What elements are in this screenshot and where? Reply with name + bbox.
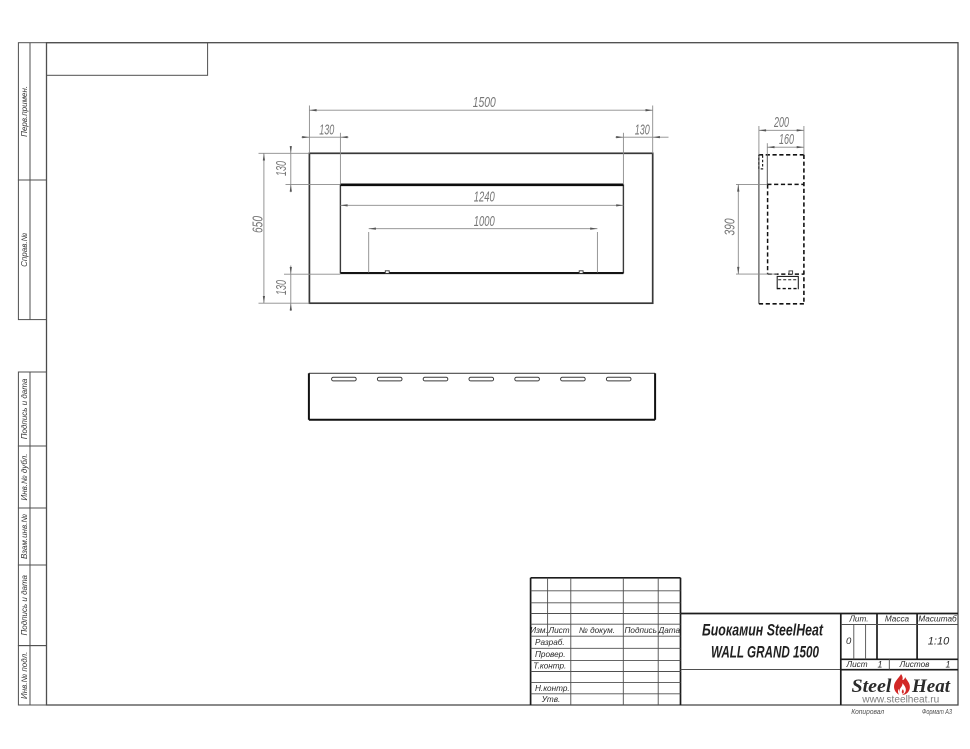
svg-text:www.steelheat.ru: www.steelheat.ru <box>861 695 939 706</box>
svg-text:Инв.№ дубл.: Инв.№ дубл. <box>20 454 29 501</box>
svg-text:Дата: Дата <box>657 626 680 635</box>
svg-text:Н.контр.: Н.контр. <box>535 684 570 693</box>
svg-text:130: 130 <box>273 161 290 176</box>
svg-text:Лист: Лист <box>845 660 867 669</box>
svg-text:130: 130 <box>319 122 334 139</box>
svg-text:Лист: Лист <box>547 626 569 635</box>
svg-text:Масштаб: Масштаб <box>918 615 957 624</box>
svg-text:130: 130 <box>273 280 290 295</box>
svg-text:390: 390 <box>722 218 739 235</box>
svg-text:Взам.инв.№: Взам.инв.№ <box>20 514 29 559</box>
svg-text:Инв.№ подл.: Инв.№ подл. <box>20 652 29 699</box>
svg-text:Копировал: Копировал <box>851 707 885 716</box>
svg-text:200: 200 <box>773 114 789 131</box>
svg-text:№ докум.: № докум. <box>579 626 615 635</box>
svg-text:Изм.: Изм. <box>530 626 547 635</box>
svg-text:160: 160 <box>779 131 794 148</box>
svg-text:Листов: Листов <box>899 660 931 669</box>
svg-text:Подпись и дата: Подпись и дата <box>20 574 29 635</box>
svg-text:Лит.: Лит. <box>848 615 868 624</box>
svg-text:650: 650 <box>249 216 266 233</box>
svg-text:1000: 1000 <box>474 213 495 230</box>
svg-text:Биокамин SteelHeat: Биокамин SteelHeat <box>702 622 824 640</box>
svg-text:Подпись и дата: Подпись и дата <box>20 378 29 439</box>
svg-text:1500: 1500 <box>473 94 496 111</box>
svg-text:0: 0 <box>846 636 852 647</box>
svg-text:1:10: 1:10 <box>928 636 950 648</box>
svg-text:Формат А3: Формат А3 <box>922 707 953 716</box>
svg-text:Подпись: Подпись <box>624 626 656 635</box>
svg-text:Провер.: Провер. <box>535 650 566 659</box>
svg-text:Т.контр.: Т.контр. <box>533 662 566 671</box>
svg-text:Справ.№: Справ.№ <box>20 232 29 266</box>
svg-text:1: 1 <box>878 660 883 670</box>
svg-text:1240: 1240 <box>474 188 495 205</box>
svg-text:WALL GRAND 1500: WALL GRAND 1500 <box>711 643 820 661</box>
svg-text:1: 1 <box>946 660 951 670</box>
svg-text:130: 130 <box>635 122 650 139</box>
svg-text:Перв.примен.: Перв.примен. <box>20 86 29 137</box>
svg-text:Утв.: Утв. <box>541 695 561 704</box>
svg-text:Масса: Масса <box>885 615 910 624</box>
svg-text:Разраб.: Разраб. <box>535 638 565 647</box>
